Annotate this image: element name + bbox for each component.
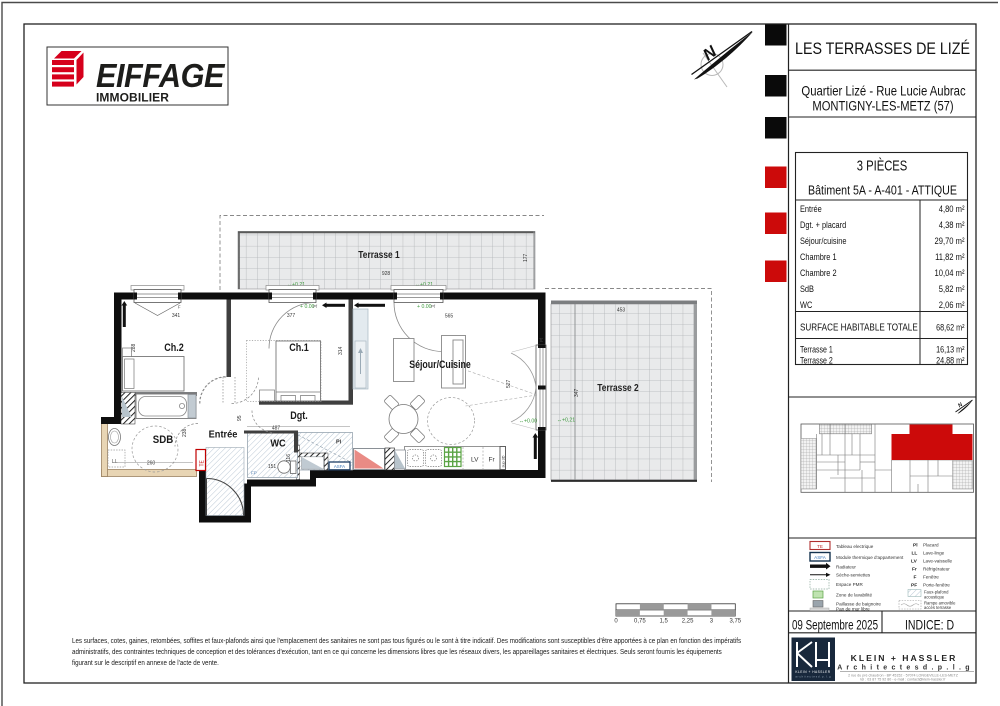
svg-text:TE: TE [817, 544, 823, 549]
svg-text:0,75: 0,75 [634, 619, 646, 625]
svg-text:116: 116 [286, 454, 292, 462]
svg-text:Entrée: Entrée [209, 429, 238, 441]
svg-text:565: 565 [445, 314, 454, 320]
svg-text:95: 95 [237, 415, 243, 421]
svg-text:Terrasse 1: Terrasse 1 [358, 249, 400, 261]
svg-text:LL: LL [912, 551, 918, 557]
svg-text:Réfrigérateur: Réfrigérateur [923, 567, 950, 572]
svg-text:Chambre 2: Chambre 2 [800, 267, 837, 278]
svg-text:Fr: Fr [912, 567, 917, 573]
svg-text:tél : 03 87 75 92 80 - e-mai: tél : 03 87 75 92 80 - e-mail : contact@… [860, 678, 946, 682]
svg-text:377: 377 [287, 313, 296, 319]
svg-text:EIFFAGE: EIFFAGE [96, 57, 226, 94]
svg-text:1,5: 1,5 [660, 619, 669, 625]
svg-text:347: 347 [574, 388, 580, 397]
svg-text:WC: WC [270, 438, 285, 450]
svg-text:figurant sur le descriptif en: figurant sur le descriptif en annexe de … [72, 659, 219, 667]
svg-text:IMMOBILIER: IMMOBILIER [96, 91, 169, 105]
svg-text:3,75: 3,75 [729, 619, 741, 625]
svg-text:453: 453 [617, 308, 626, 314]
svg-text:SdB: SdB [800, 283, 814, 294]
svg-text:↔+0.00: ↔+0.00 [519, 419, 537, 425]
svg-text:Chambre 1: Chambre 1 [800, 251, 837, 262]
svg-text:LV: LV [471, 457, 479, 464]
svg-text:3 PIÈCES: 3 PIÈCES [857, 157, 908, 174]
svg-text:TE: TE [200, 459, 206, 466]
svg-text:09 Septembre 2025: 09 Septembre 2025 [792, 617, 878, 633]
svg-text:F: F [914, 575, 917, 581]
svg-text:16,13 m²: 16,13 m² [936, 345, 965, 355]
svg-text:2,25: 2,25 [682, 619, 694, 625]
svg-text:SURFACE HABITABLE TOTALE: SURFACE HABITABLE TOTALE [800, 322, 918, 333]
svg-text:Terrasse 2: Terrasse 2 [800, 356, 833, 366]
svg-text:177: 177 [523, 253, 529, 262]
svg-text:151: 151 [268, 464, 277, 470]
svg-text:FP: FP [251, 471, 257, 476]
svg-text:SDB: SDB [153, 435, 174, 447]
svg-text:2,06 m²: 2,06 m² [939, 299, 965, 310]
svg-text:Porte-fenêtre: Porte-fenêtre [923, 583, 950, 588]
svg-text:Quartier Lizé - Rue Lucie Aubr: Quartier Lizé - Rue Lucie Aubrac [801, 82, 966, 98]
svg-text:Entrée: Entrée [800, 203, 822, 214]
svg-text:LL: LL [112, 459, 118, 465]
svg-text:MONTIGNY-LES-METZ (57): MONTIGNY-LES-METZ (57) [812, 98, 953, 113]
svg-text:↔+0,21: ↔+0,21 [557, 418, 575, 424]
svg-text:LES TERRASSES DE LIZÉ: LES TERRASSES DE LIZÉ [795, 38, 970, 59]
svg-text:Lave-linge: Lave-linge [923, 551, 945, 556]
svg-text:INDICE: D: INDICE: D [905, 617, 954, 633]
svg-text:Pan de mur libre: Pan de mur libre [836, 607, 870, 612]
svg-text:acoustique: acoustique [924, 594, 945, 599]
svg-text:238: 238 [182, 428, 188, 437]
svg-text:A r c h i t e c t e s d . p .: A r c h i t e c t e s d . p . l . g [837, 665, 971, 672]
svg-text:4,80 m²: 4,80 m² [939, 203, 965, 214]
svg-text:Pl: Pl [336, 440, 342, 446]
svg-text:Lave-vaisselle: Lave-vaisselle [923, 559, 953, 564]
svg-text:288: 288 [131, 343, 137, 352]
svg-text:Fr: Fr [489, 457, 496, 464]
svg-text:10,04 m²: 10,04 m² [935, 267, 965, 278]
svg-text:Ch.1: Ch.1 [289, 342, 309, 354]
svg-text:Bâtiment 5A - A-401 - ATTIQUE: Bâtiment 5A - A-401 - ATTIQUE [808, 182, 957, 197]
svg-text:Dgt.: Dgt. [290, 410, 308, 422]
svg-text:Fenêtre: Fenêtre [923, 575, 939, 580]
svg-text:KLEIN + HASSLER: KLEIN + HASSLER [851, 653, 958, 663]
svg-text:Sèche-serviettes: Sèche-serviettes [836, 573, 871, 578]
svg-text:24,88 m²: 24,88 m² [936, 356, 965, 366]
svg-text:Placard: Placard [923, 543, 939, 548]
svg-text:accès terrasse: accès terrasse [924, 605, 952, 610]
svg-text:928: 928 [382, 271, 391, 277]
svg-text:ASFA: ASFA [334, 464, 345, 469]
svg-text:Les surfaces, cotes, gaines, r: Les surfaces, cotes, gaines, retombées, … [72, 637, 742, 645]
svg-text:Zone de lavabilité: Zone de lavabilité [836, 593, 872, 598]
svg-text:4,38 m²: 4,38 m² [939, 219, 965, 230]
svg-text:Ch.2: Ch.2 [164, 342, 184, 354]
svg-text:a r c h i t e c t e s d . p .: a r c h i t e c t e s d . p . l . g [795, 675, 831, 679]
svg-text:+ 0.00: + 0.00 [417, 304, 432, 310]
svg-text:68,62 m²: 68,62 m² [936, 323, 965, 333]
svg-text:5,82 m²: 5,82 m² [939, 283, 965, 294]
svg-text:sup 3D: sup 3D [502, 455, 506, 467]
svg-text:Terrasse 1: Terrasse 1 [800, 345, 833, 355]
svg-text:Pl: Pl [913, 543, 918, 549]
svg-text:ASFA: ASFA [814, 555, 827, 560]
svg-text:PF: PF [911, 583, 917, 589]
svg-text:Séjour/Cuisine: Séjour/Cuisine [409, 359, 471, 371]
svg-text:LV: LV [911, 559, 918, 565]
svg-text:F: F [178, 305, 181, 310]
svg-text:KLEIN + HASSLER: KLEIN + HASSLER [795, 670, 830, 674]
svg-text:314: 314 [338, 346, 344, 355]
svg-text:Radiateur: Radiateur [836, 564, 856, 569]
svg-text:Tableau electrique: Tableau electrique [836, 544, 874, 549]
svg-text:Espace PMR: Espace PMR [836, 582, 863, 587]
svg-text:341: 341 [172, 313, 181, 319]
svg-text:Terrasse 2: Terrasse 2 [597, 382, 638, 394]
svg-text:11,82 m²: 11,82 m² [935, 251, 965, 262]
svg-text:260: 260 [147, 461, 156, 467]
svg-text:Module thermique d'appartement: Module thermique d'appartement [836, 555, 904, 560]
svg-text:administratifs, des contrainte: administratifs, des contraintes techniqu… [72, 648, 722, 656]
svg-text:527: 527 [506, 379, 512, 388]
svg-text:29,70 m²: 29,70 m² [935, 235, 965, 246]
svg-text:Séjour/cuisine: Séjour/cuisine [800, 235, 847, 246]
svg-text:WC: WC [800, 299, 812, 310]
svg-text:Dgt. + placard: Dgt. + placard [800, 219, 846, 230]
